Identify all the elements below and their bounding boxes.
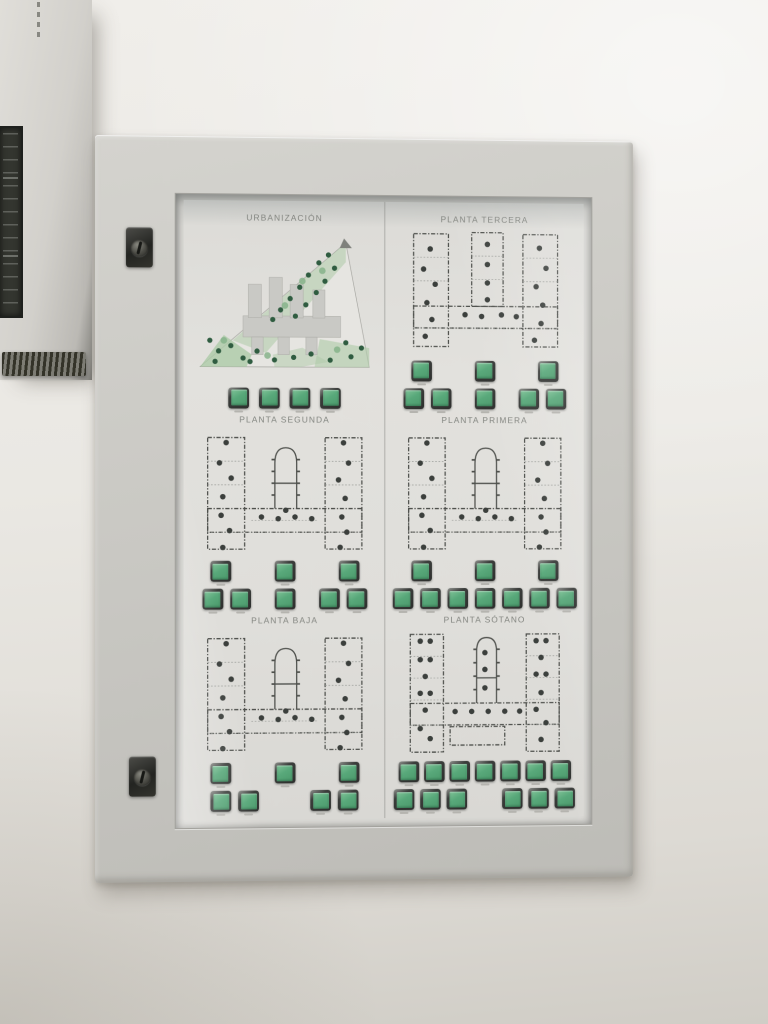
- zone-button-bezel[interactable]: [430, 388, 451, 409]
- zone-button-bezel[interactable]: [398, 761, 419, 782]
- zone-button[interactable]: [320, 388, 341, 413]
- zone-button-label: [452, 811, 461, 813]
- zone-button-bezel[interactable]: [210, 791, 231, 812]
- zone-button-label: [400, 812, 409, 814]
- zone-button-label: [560, 810, 569, 812]
- zone-button[interactable]: [424, 761, 445, 786]
- zone-button-label: [508, 811, 517, 813]
- zone-button[interactable]: [420, 789, 441, 814]
- zone-button-face: [477, 563, 493, 579]
- button-group: [228, 387, 340, 412]
- zone-button-bezel[interactable]: [474, 388, 494, 409]
- zone-button-face: [527, 763, 543, 779]
- zone-button-bezel[interactable]: [474, 761, 494, 782]
- zone-button[interactable]: [555, 788, 575, 813]
- plan-title-planta-primera: PLANTA PRIMERA: [441, 415, 527, 425]
- zone-button[interactable]: [210, 791, 231, 816]
- zone-button-face: [540, 363, 556, 379]
- zone-button-face: [277, 591, 293, 607]
- zone-button[interactable]: [538, 561, 558, 586]
- zone-button-bezel[interactable]: [238, 790, 259, 811]
- zone-button[interactable]: [447, 789, 467, 814]
- button-group: [392, 588, 576, 613]
- zone-button-bezel[interactable]: [411, 360, 432, 381]
- zone-button-label: [480, 583, 489, 585]
- zone-button-label: [534, 811, 543, 813]
- zone-button-bezel[interactable]: [447, 588, 467, 609]
- zone-button-bezel[interactable]: [310, 790, 331, 811]
- button-row: [210, 762, 359, 788]
- zone-button-label: [280, 785, 289, 787]
- zone-button-face: [212, 564, 228, 580]
- zone-button-bezel[interactable]: [474, 561, 494, 582]
- zone-button[interactable]: [502, 788, 522, 813]
- zone-button-face: [340, 792, 356, 808]
- mimic-panel: URBANIZACIÓNPLANTA TERCERAPLANTA SEGUNDA…: [95, 135, 633, 883]
- button-group: [474, 361, 494, 386]
- floor-plan-planta-sotano: [398, 627, 570, 758]
- plan-section-planta-segunda: PLANTA SEGUNDA: [190, 412, 379, 614]
- zone-button[interactable]: [430, 388, 451, 413]
- zone-button-bezel[interactable]: [411, 561, 432, 582]
- plan-section-urbanizacion: URBANIZACIÓN: [190, 210, 379, 413]
- zone-button-bezel[interactable]: [538, 361, 558, 382]
- zone-button-face: [502, 763, 518, 779]
- zone-button-face: [231, 390, 247, 406]
- floor-plan-planta-baja: [197, 628, 371, 760]
- button-row: [392, 588, 576, 613]
- zone-button[interactable]: [392, 588, 413, 613]
- zone-button-bezel[interactable]: [210, 763, 231, 784]
- zone-button-bezel[interactable]: [420, 588, 441, 609]
- zone-button-face: [423, 791, 439, 807]
- zone-button[interactable]: [556, 588, 576, 613]
- zone-button-bezel[interactable]: [320, 388, 341, 409]
- zone-button-label: [543, 384, 552, 386]
- floor-plan-planta-primera: [398, 427, 570, 557]
- zone-button-face: [505, 791, 521, 807]
- zone-button-face: [557, 790, 573, 806]
- button-group: [403, 388, 451, 413]
- zone-button-bezel[interactable]: [525, 760, 545, 781]
- zone-button[interactable]: [550, 760, 570, 785]
- zone-button[interactable]: [319, 589, 340, 614]
- zone-button-bezel[interactable]: [556, 588, 576, 609]
- plan-section-planta-tercera: PLANTA TERCERA: [391, 212, 578, 413]
- zone-button-face: [477, 763, 493, 779]
- button-row: [394, 788, 575, 814]
- zone-button-label: [344, 584, 353, 586]
- zone-button-bezel[interactable]: [346, 589, 367, 610]
- zone-button-label: [429, 784, 438, 786]
- zone-button-bezel[interactable]: [447, 789, 467, 810]
- zone-button-face: [313, 792, 329, 808]
- plan-section-planta-primera: PLANTA PRIMERA: [391, 413, 578, 614]
- zone-button-face: [521, 391, 537, 407]
- zone-button-face: [413, 563, 429, 579]
- zone-button-label: [216, 814, 225, 816]
- zone-button-label: [216, 584, 225, 586]
- zone-button-label: [506, 783, 515, 785]
- floor-plan-planta-tercera: [398, 227, 570, 358]
- zone-button-bezel[interactable]: [274, 762, 295, 783]
- button-row: [210, 790, 358, 816]
- zone-button[interactable]: [338, 790, 359, 815]
- plan-title-urbanizacion: URBANIZACIÓN: [246, 212, 322, 223]
- panel-window: URBANIZACIÓNPLANTA TERCERAPLANTA SEGUNDA…: [175, 193, 593, 829]
- zone-button[interactable]: [449, 761, 469, 786]
- cam-lock-bottom[interactable]: [129, 757, 156, 797]
- zone-button-bezel[interactable]: [403, 388, 424, 409]
- zone-button[interactable]: [310, 790, 331, 815]
- zone-button-bezel[interactable]: [274, 561, 295, 582]
- zone-button[interactable]: [338, 561, 359, 586]
- zone-button[interactable]: [447, 588, 467, 613]
- zone-button-face: [261, 390, 277, 406]
- zone-button-bezel[interactable]: [502, 588, 522, 609]
- zone-button-face: [213, 793, 229, 809]
- zone-button-face: [395, 591, 411, 607]
- zone-button-label: [480, 383, 489, 385]
- button-group: [338, 762, 359, 787]
- zone-button[interactable]: [238, 790, 259, 815]
- zone-button[interactable]: [529, 588, 549, 613]
- zone-button-bezel[interactable]: [394, 789, 415, 810]
- zone-button-bezel[interactable]: [449, 761, 469, 782]
- zone-button-bezel[interactable]: [518, 388, 538, 409]
- zone-button-label: [480, 783, 489, 785]
- zone-button-face: [477, 391, 493, 407]
- zone-button-label: [344, 785, 353, 787]
- zone-button[interactable]: [202, 589, 223, 614]
- zone-button[interactable]: [403, 388, 424, 413]
- button-row: [210, 561, 359, 586]
- button-row: [228, 387, 340, 412]
- zone-button-face: [241, 793, 257, 809]
- zone-button[interactable]: [290, 387, 311, 412]
- zone-button-face: [451, 763, 467, 779]
- zone-button-bezel[interactable]: [550, 760, 570, 781]
- button-row: [403, 388, 566, 413]
- zone-button-face: [433, 390, 449, 406]
- zone-button-face: [277, 765, 293, 781]
- zone-button[interactable]: [411, 561, 432, 586]
- zone-button-bezel[interactable]: [424, 761, 445, 782]
- zone-button-face: [292, 390, 308, 406]
- button-group: [502, 788, 575, 813]
- zone-button[interactable]: [411, 360, 432, 385]
- button-group: [394, 789, 467, 814]
- zone-button[interactable]: [518, 388, 538, 413]
- zone-button-bezel[interactable]: [420, 789, 441, 810]
- zone-button-face: [449, 791, 465, 807]
- zone-button-bezel[interactable]: [338, 762, 359, 783]
- vent-grille: [2, 352, 86, 376]
- zone-button-face: [548, 391, 564, 407]
- button-group: [202, 589, 251, 614]
- zone-button-bezel[interactable]: [202, 589, 223, 610]
- zone-button-bezel[interactable]: [528, 788, 548, 809]
- zone-button-face: [553, 763, 569, 779]
- zone-button-face: [422, 591, 438, 607]
- zone-button-face: [477, 591, 493, 607]
- zone-button-bezel[interactable]: [230, 589, 251, 610]
- plan-section-planta-sotano: PLANTA SÓTANO: [391, 613, 578, 814]
- floor-plan-planta-segunda: [197, 427, 371, 558]
- button-group: [411, 561, 432, 586]
- zone-button[interactable]: [502, 588, 522, 613]
- zone-button-face: [504, 591, 520, 607]
- zone-button-bezel[interactable]: [474, 588, 494, 609]
- zone-button-face: [341, 764, 357, 780]
- dark-mimic-display: [0, 126, 23, 318]
- button-group: [474, 561, 494, 586]
- zone-button[interactable]: [394, 789, 415, 814]
- zone-button[interactable]: [474, 388, 494, 413]
- zone-button[interactable]: [538, 361, 558, 386]
- zone-button-label: [216, 786, 225, 788]
- zone-button-face: [212, 765, 228, 781]
- button-group: [411, 360, 432, 385]
- zone-button-label: [455, 784, 464, 786]
- zone-button[interactable]: [474, 561, 494, 586]
- zone-button-face: [204, 591, 220, 607]
- zone-button-label: [417, 383, 426, 385]
- zone-button-face: [531, 790, 547, 806]
- button-group: [518, 388, 566, 413]
- zone-button[interactable]: [230, 589, 251, 614]
- zone-button-face: [531, 591, 547, 607]
- zone-button-face: [277, 563, 293, 579]
- zone-button[interactable]: [474, 588, 494, 613]
- zone-button-bezel[interactable]: [555, 788, 575, 809]
- zone-button-label: [556, 783, 565, 785]
- zone-button-label: [280, 584, 289, 586]
- button-group: [338, 561, 359, 586]
- button-group: [398, 760, 570, 786]
- zone-button-face: [426, 764, 442, 780]
- zone-button[interactable]: [274, 762, 295, 787]
- zone-button-bezel[interactable]: [259, 387, 280, 408]
- zone-button[interactable]: [259, 387, 280, 412]
- plan-title-planta-sotano: PLANTA SÓTANO: [444, 615, 526, 625]
- zone-button[interactable]: [474, 761, 494, 786]
- button-group: [538, 561, 558, 586]
- zone-button-face: [477, 363, 493, 379]
- zone-button[interactable]: [210, 763, 231, 788]
- zone-button-face: [349, 591, 365, 607]
- button-group: [538, 361, 558, 386]
- zone-button-bezel[interactable]: [338, 561, 359, 582]
- zone-button-face: [558, 591, 573, 607]
- zone-button-face: [413, 363, 429, 379]
- zone-button-bezel[interactable]: [545, 388, 565, 409]
- zone-button[interactable]: [346, 589, 367, 614]
- zone-button-face: [232, 591, 248, 607]
- button-group: [274, 561, 295, 586]
- button-group: [474, 388, 494, 413]
- zone-button-bezel[interactable]: [502, 788, 522, 809]
- zone-button-bezel[interactable]: [319, 589, 340, 610]
- zone-button-face: [401, 764, 417, 780]
- zone-button-label: [344, 812, 353, 814]
- zone-button[interactable]: [420, 588, 441, 613]
- zone-button[interactable]: [525, 760, 545, 785]
- zone-button-label: [417, 584, 426, 586]
- zone-button-bezel[interactable]: [228, 387, 249, 408]
- button-row: [398, 760, 570, 786]
- floor-plan-urbanizacion: [197, 225, 371, 385]
- zone-button-bezel[interactable]: [474, 361, 494, 382]
- zone-button[interactable]: [528, 788, 548, 813]
- floor-plan-sheet: URBANIZACIÓNPLANTA TERCERAPLANTA SEGUNDA…: [184, 200, 584, 820]
- zone-button-label: [316, 813, 325, 815]
- button-row: [411, 360, 558, 385]
- zone-button-label: [426, 812, 435, 814]
- zone-button[interactable]: [398, 761, 419, 786]
- zone-button-bezel[interactable]: [210, 561, 231, 582]
- zone-button[interactable]: [274, 561, 295, 586]
- zone-button[interactable]: [274, 589, 295, 614]
- zone-button[interactable]: [338, 762, 359, 787]
- zone-button-face: [540, 563, 556, 579]
- button-group: [319, 589, 367, 614]
- zone-button-label: [404, 784, 413, 786]
- button-group: [274, 589, 295, 614]
- zone-button-label: [543, 583, 552, 585]
- zone-button-face: [321, 591, 337, 607]
- zone-button[interactable]: [474, 361, 494, 386]
- plan-title-planta-segunda: PLANTA SEGUNDA: [239, 414, 330, 424]
- zone-button-bezel[interactable]: [274, 589, 295, 610]
- zone-button-face: [406, 390, 422, 406]
- zone-button-bezel[interactable]: [290, 387, 311, 408]
- plan-title-planta-tercera: PLANTA TERCERA: [441, 214, 529, 225]
- zone-button-label: [531, 783, 540, 785]
- zone-button[interactable]: [210, 561, 231, 586]
- zone-button-bezel[interactable]: [538, 561, 558, 582]
- zone-button-bezel[interactable]: [392, 588, 413, 609]
- zone-button-label: [244, 813, 253, 815]
- button-row: [411, 561, 558, 586]
- zone-button-face: [323, 390, 339, 406]
- plan-section-planta-baja: PLANTA BAJA: [190, 613, 379, 816]
- zone-button-bezel[interactable]: [529, 588, 549, 609]
- zone-button-face: [450, 591, 466, 607]
- zone-button[interactable]: [500, 760, 520, 785]
- plan-title-planta-baja: PLANTA BAJA: [251, 616, 318, 626]
- button-row: [202, 589, 367, 614]
- cam-lock-top[interactable]: [126, 227, 153, 267]
- zone-button-bezel[interactable]: [500, 760, 520, 781]
- mounting-dashes: [37, 2, 40, 38]
- button-group: [210, 790, 259, 815]
- button-group: [210, 763, 231, 788]
- button-group: [274, 762, 295, 787]
- button-group: [310, 790, 358, 815]
- zone-button[interactable]: [545, 388, 565, 413]
- zone-button[interactable]: [228, 387, 249, 412]
- zone-button-face: [396, 792, 412, 808]
- zone-button-bezel[interactable]: [338, 790, 359, 811]
- adjacent-cabinet: [0, 0, 92, 380]
- zone-button-face: [341, 563, 357, 579]
- button-group: [210, 561, 231, 586]
